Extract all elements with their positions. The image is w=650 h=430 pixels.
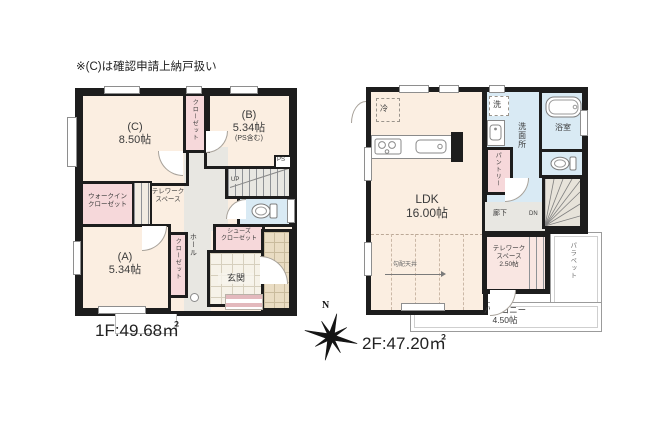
plan-note: ※(C)は確認申請上納戸扱い	[76, 61, 217, 75]
sloped-ceiling-boundary	[371, 234, 483, 235]
ceiling-line-2	[415, 234, 416, 310]
pantry-label: パントリー	[493, 152, 500, 187]
balcony-size: 4.50帖	[460, 315, 550, 325]
telework-2f-line2: スペース	[487, 253, 531, 261]
kitchen-counter	[371, 135, 455, 159]
window-ldk-left-1	[364, 147, 372, 181]
telework-2f-size: 2.50帖	[487, 261, 531, 269]
room-a-size: 5.34帖	[90, 264, 160, 277]
room-c-name: (C)	[98, 121, 172, 134]
ldk-exterior-door-arc	[351, 101, 366, 123]
hall-label: ホール	[188, 233, 196, 257]
washroom-door-arc	[505, 178, 529, 202]
bathroom-label: 浴室	[548, 123, 578, 133]
wet-area-block: 洗 洗面所 浴室	[482, 87, 588, 234]
closet-a-label: クローゼット	[173, 238, 180, 280]
ceiling-line-4	[463, 234, 464, 310]
walkin-closet-line1: ウォークイン	[81, 193, 134, 201]
window-room-a-bottom	[98, 306, 146, 314]
ceiling-line-1	[391, 234, 392, 310]
area-label-2f: 2F:47.20㎡	[362, 334, 446, 354]
area-label-1f: 1F:49.68㎡	[95, 321, 179, 341]
compass-star-icon	[300, 311, 362, 363]
floor-plan-1f: ホール (C) 8.50帖 クローゼット (B) 5.34帖 (PS含む) PS…	[75, 88, 297, 316]
telework-2f-label: テレワーク スペース 2.50帖	[487, 245, 531, 268]
sloped-ceiling-arrowhead	[441, 271, 446, 277]
ldk-size: 16.00帖	[389, 206, 465, 220]
window-ldk-top-2	[439, 85, 459, 93]
stairs-up-label: UP	[230, 177, 240, 184]
window-ldk-bottom	[401, 303, 445, 311]
telework-2f-line1: テレワーク	[487, 245, 531, 253]
fridge-label: 冷	[380, 104, 388, 114]
compass: N	[300, 300, 362, 364]
ceiling-line-3	[439, 234, 440, 310]
shoes-closet-line2: クローゼット	[214, 236, 264, 243]
walkin-closet-line2: クローゼット	[81, 201, 134, 209]
toilet-icon	[250, 201, 280, 221]
parapet-label: パラペット	[568, 242, 576, 280]
bathtub-icon	[545, 96, 582, 118]
entrance-label: 玄関	[218, 273, 254, 284]
toilet-2f-icon	[549, 155, 579, 173]
bathroom: 浴室	[539, 90, 585, 152]
walkin-closet-label: ウォークイン クローゼット	[81, 193, 134, 209]
stair-fan-lines	[545, 179, 580, 226]
room-b-name: (B)	[216, 109, 282, 122]
floor-plan-2f: パラペット バルコニー 4.50帖 冷	[360, 85, 608, 335]
closet-top-label: クローゼット	[190, 99, 197, 141]
staircase-2f	[542, 176, 583, 229]
washer-label: 洗	[493, 100, 501, 110]
toilet-room-2f	[539, 149, 585, 178]
sloped-ceiling-arrow-line	[385, 274, 443, 275]
window-ldk-top-1	[399, 85, 429, 93]
room-a-label: (A) 5.34帖	[90, 251, 160, 277]
hall-fixture-icon	[190, 293, 199, 302]
telework-1f-line2: スペース	[150, 196, 186, 204]
stairs-down-label: DN	[529, 211, 538, 218]
washroom-label: 洗面所	[517, 122, 527, 149]
window-toilet-right	[287, 199, 295, 223]
ldk-block: 冷 LDK 16.00帖	[366, 87, 488, 315]
sloped-ceiling-label: 勾配天井	[393, 262, 417, 269]
counter-wall-stub	[451, 132, 463, 162]
room-c-label: (C) 8.50帖	[98, 121, 172, 147]
window-room-a-left	[73, 241, 81, 275]
window-room-c-left	[67, 117, 77, 167]
corridor-label: 廊下	[493, 210, 507, 218]
ps-label: PS	[277, 157, 285, 164]
floor-plan-sheet: ※(C)は確認申請上納戸扱い ホール (C) 8.50帖 クローゼット (B) …	[0, 0, 650, 430]
window-room-c-top	[104, 86, 140, 94]
telework-block-2f: テレワーク スペース 2.50帖	[482, 232, 550, 294]
window-bathroom-right	[580, 110, 588, 136]
window-room-b-top	[230, 86, 258, 94]
window-closet-top	[186, 86, 202, 94]
room-a-name: (A)	[90, 251, 160, 264]
window-ldk-left-2	[364, 242, 372, 276]
telework-counter-1f	[132, 181, 152, 227]
entrance-steps	[225, 294, 263, 310]
ldk-label: LDK 16.00帖	[389, 192, 465, 221]
shoes-closet-label: シューズ クローゼット	[214, 229, 264, 243]
room-c-size: 8.50帖	[98, 134, 172, 147]
ldk-name: LDK	[389, 192, 465, 206]
telework-label-1f: テレワーク スペース	[150, 188, 186, 204]
toilet-door-arc	[226, 199, 246, 219]
vanity-icon	[487, 120, 505, 146]
telework-shelf-stripes	[529, 237, 545, 289]
telework-1f-line1: テレワーク	[150, 188, 186, 196]
stove-sink-icons	[372, 136, 454, 157]
window-washroom-top	[489, 85, 505, 93]
